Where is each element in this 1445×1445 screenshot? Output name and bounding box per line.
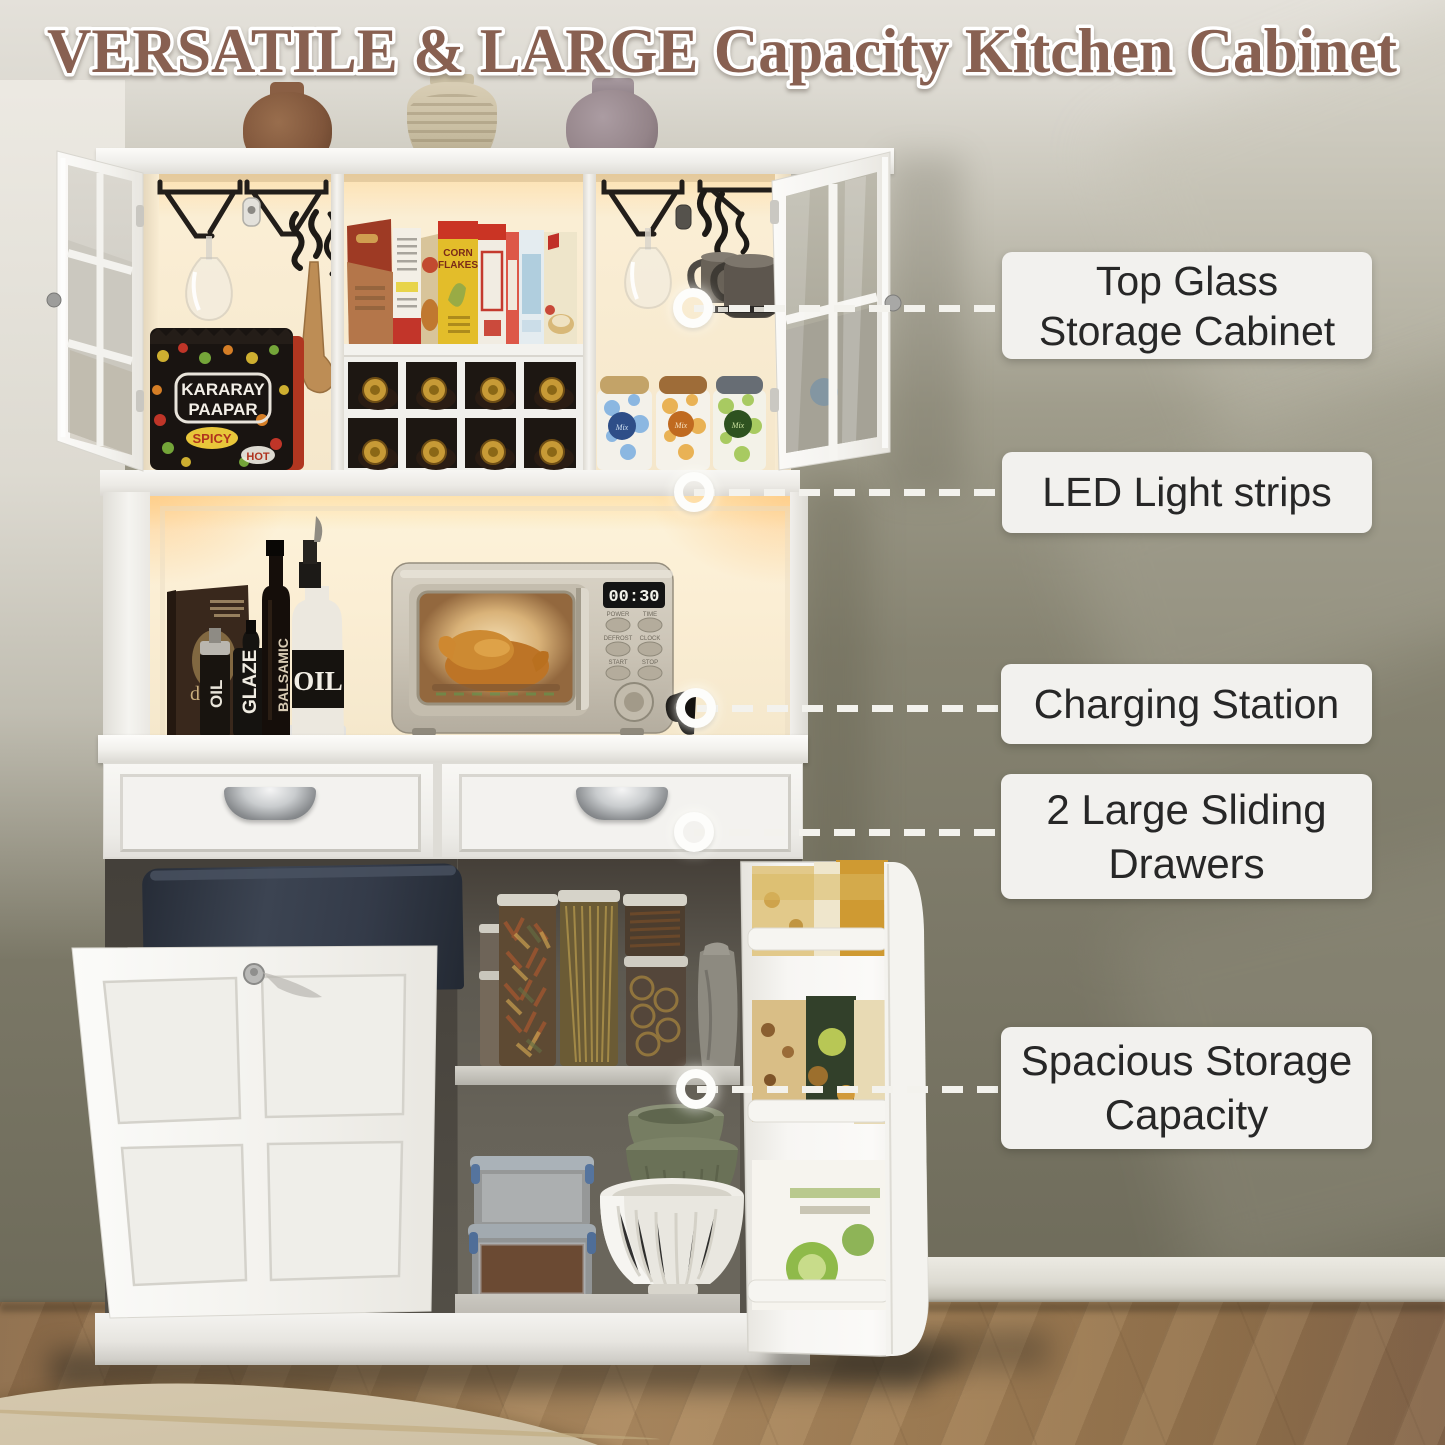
svg-text:VERSATILE & LARGE Capacity Kit: VERSATILE & LARGE Capacity Kitchen Cabin… xyxy=(47,15,1398,86)
